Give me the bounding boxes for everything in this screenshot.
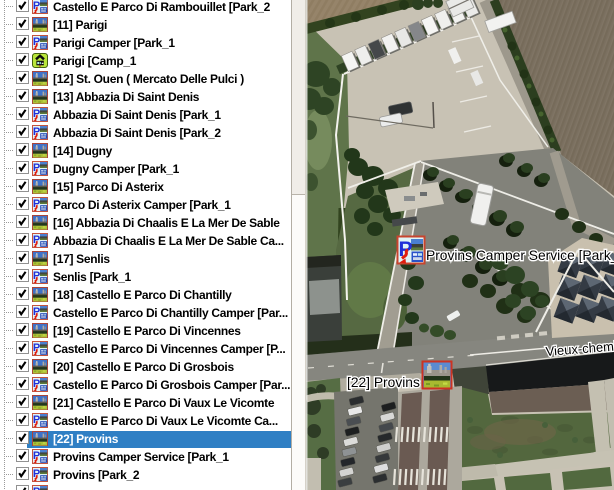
svg-text:P: P [33, 486, 40, 490]
svg-text:[22] Provins: [22] Provins [347, 375, 420, 390]
svg-text:P: P [399, 238, 413, 261]
svg-text:Provins Camper Service [Park_: Provins Camper Service [Park_ [426, 248, 614, 263]
